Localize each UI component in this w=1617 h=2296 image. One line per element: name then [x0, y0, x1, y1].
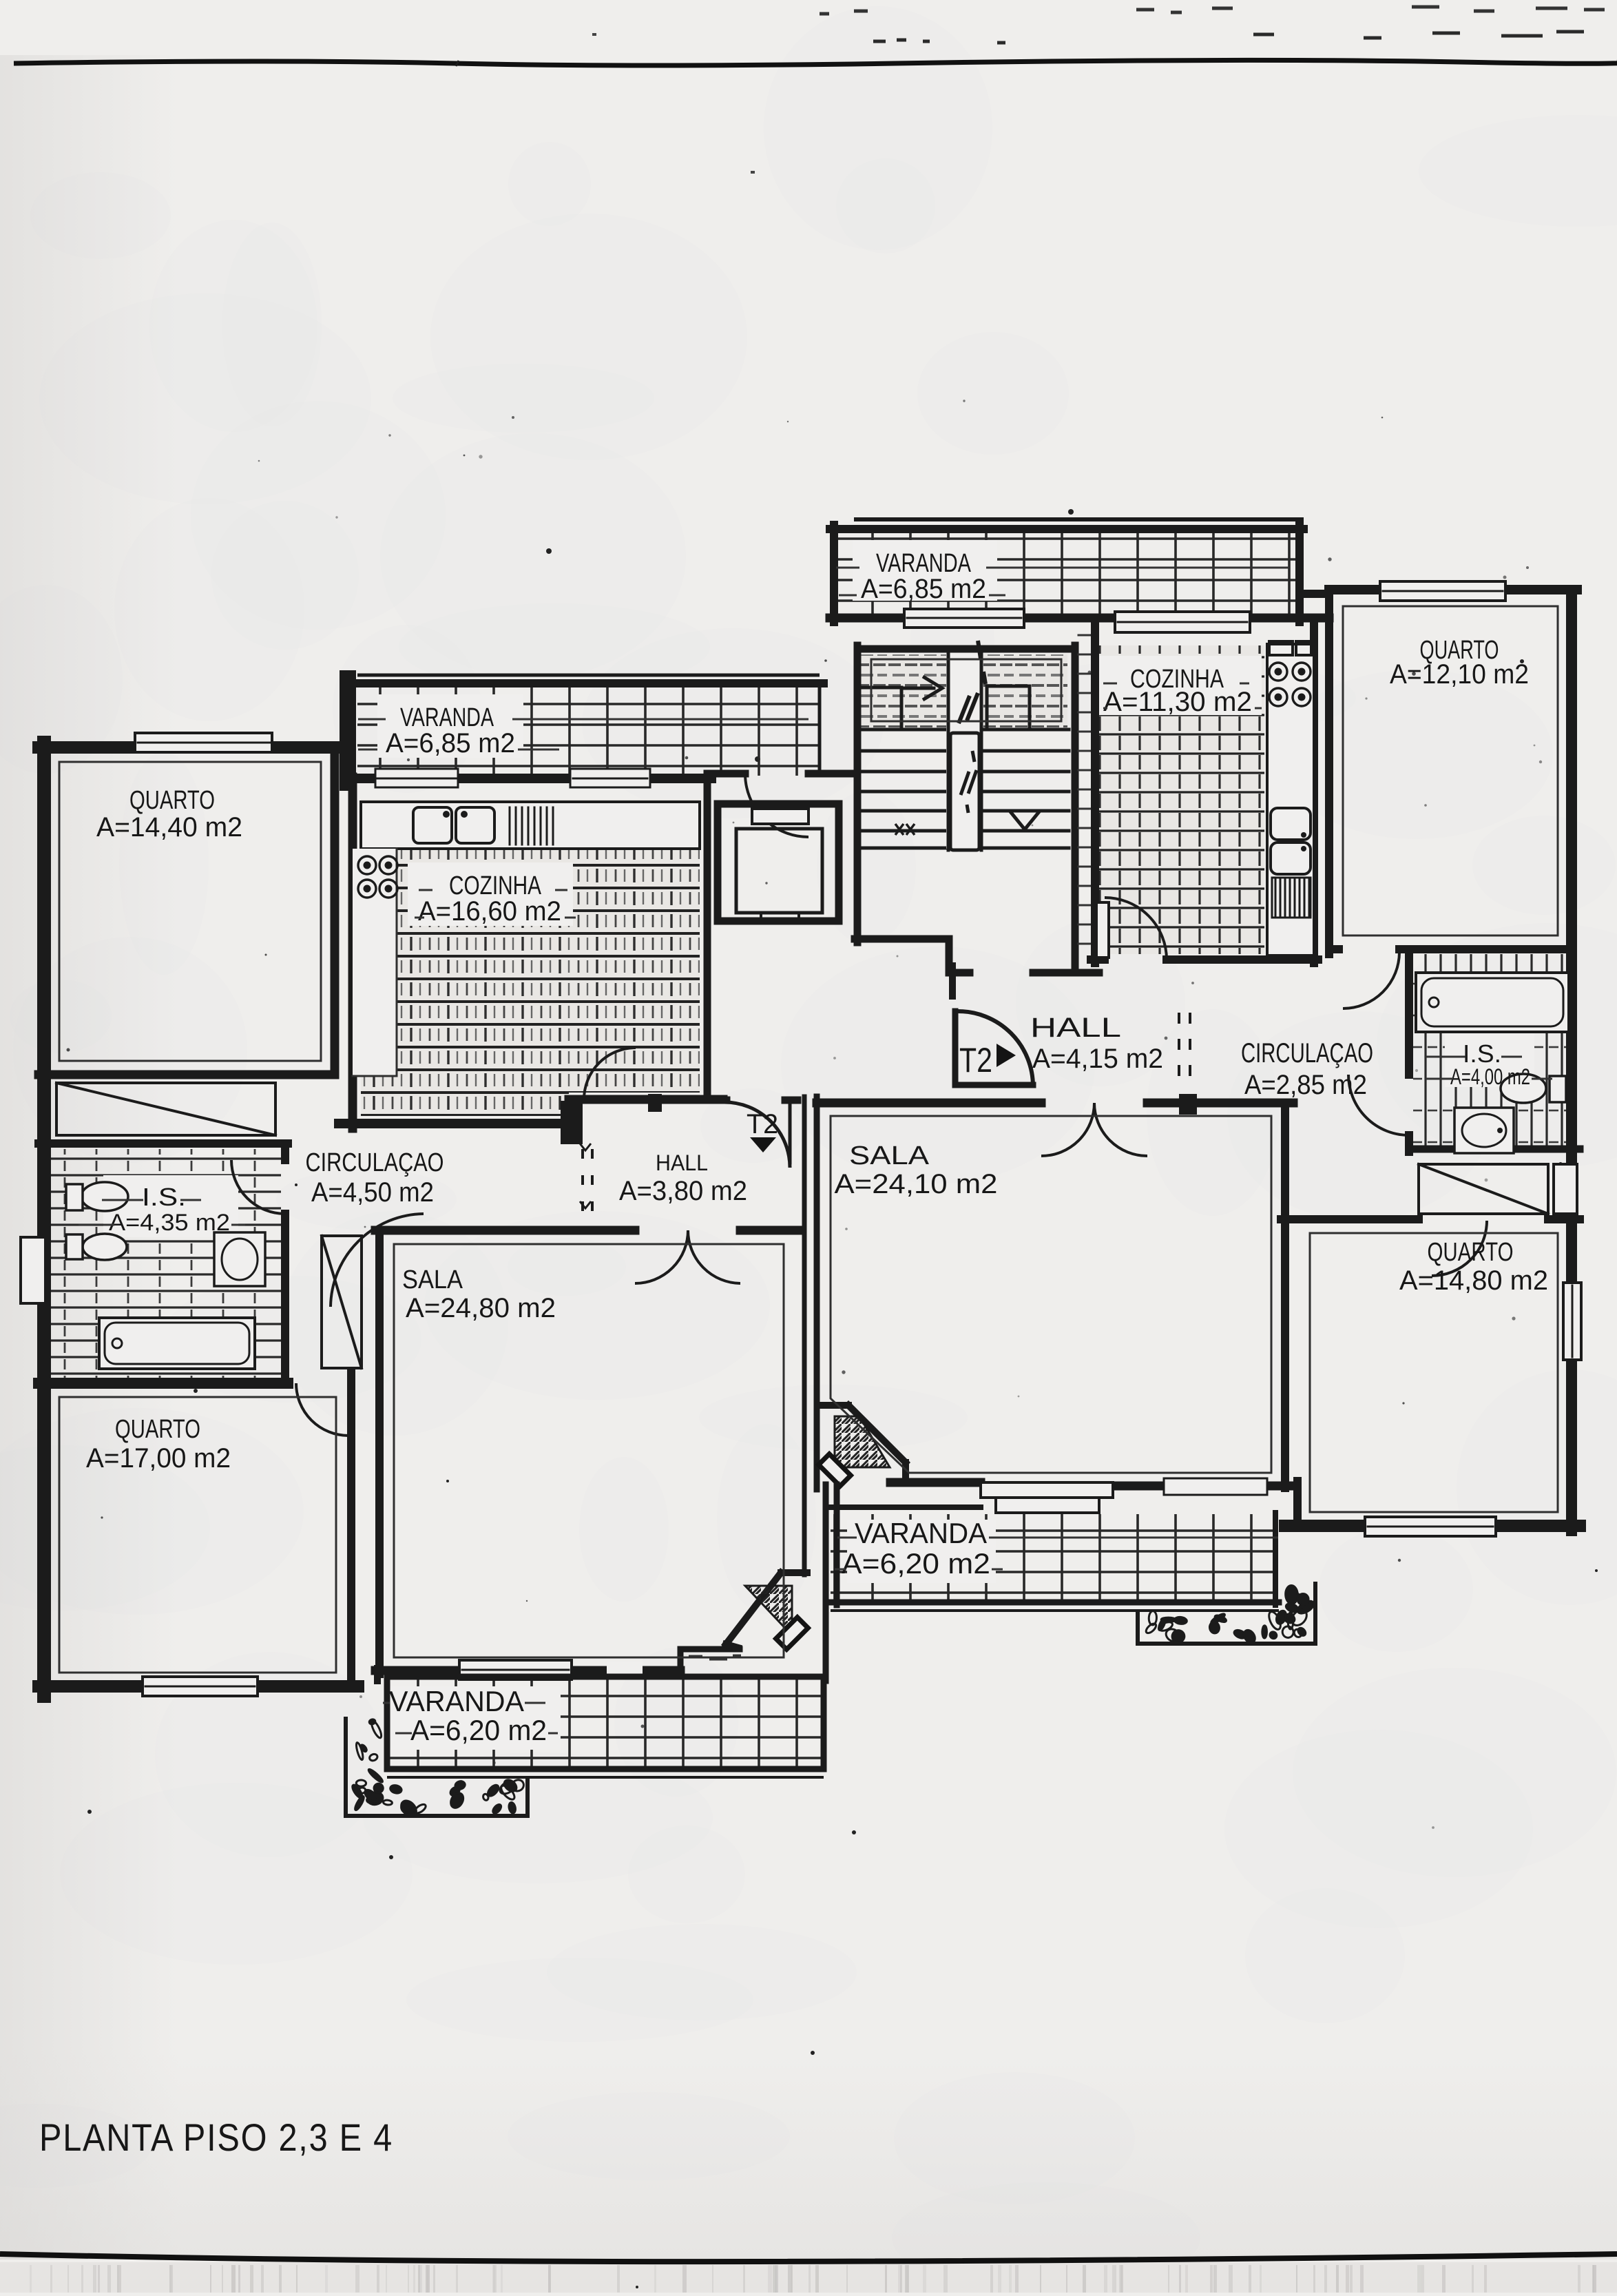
svg-text:T2: T2 — [959, 1041, 992, 1079]
svg-text:QUARTO: QUARTO — [129, 786, 215, 815]
svg-text:CIRCULAÇAO: CIRCULAÇAO — [306, 1148, 444, 1177]
svg-text:A=6,85 m2: A=6,85 m2 — [386, 728, 515, 758]
svg-text:A=4,15 m2: A=4,15 m2 — [1032, 1044, 1163, 1074]
svg-text:A=12,10 m2: A=12,10 m2 — [1390, 659, 1529, 690]
svg-text:VARANDA: VARANDA — [855, 1517, 987, 1549]
svg-text:PLANTA PISO 2,3 E 4: PLANTA PISO 2,3 E 4 — [39, 2116, 393, 2159]
svg-text:VARANDA: VARANDA — [389, 1685, 524, 1717]
svg-text:A=14,80 m2: A=14,80 m2 — [1399, 1265, 1548, 1296]
svg-text:A=14,40 m2: A=14,40 m2 — [96, 812, 242, 842]
svg-text:HALL: HALL — [1030, 1013, 1121, 1043]
svg-text:A=4,35 m2: A=4,35 m2 — [109, 1210, 230, 1236]
svg-text:A=4,00 m2: A=4,00 m2 — [1450, 1064, 1530, 1089]
svg-text:A=16,60 m2: A=16,60 m2 — [418, 896, 561, 927]
svg-text:QUARTO: QUARTO — [1428, 1238, 1514, 1267]
svg-text:A=6,20 m2: A=6,20 m2 — [842, 1547, 990, 1580]
svg-text:A=17,00 m2: A=17,00 m2 — [86, 1443, 231, 1473]
svg-text:QUARTO: QUARTO — [115, 1415, 200, 1444]
svg-text:A=2,85 m2: A=2,85 m2 — [1244, 1070, 1367, 1100]
svg-text:CIRCULAÇAO: CIRCULAÇAO — [1241, 1038, 1373, 1068]
svg-text:A=6,85 m2: A=6,85 m2 — [861, 574, 986, 604]
svg-text:SALA: SALA — [849, 1141, 930, 1170]
svg-text:I.S.: I.S. — [1463, 1040, 1501, 1068]
svg-text:A=24,10 m2: A=24,10 m2 — [835, 1169, 998, 1199]
svg-text:HALL: HALL — [656, 1150, 708, 1175]
svg-text:SALA: SALA — [402, 1265, 463, 1294]
svg-text:A=6,20 m2: A=6,20 m2 — [410, 1714, 547, 1746]
svg-text:A=3,80 m2: A=3,80 m2 — [619, 1176, 747, 1206]
svg-text:T2: T2 — [747, 1109, 778, 1139]
svg-text:A=24,80 m2: A=24,80 m2 — [406, 1293, 556, 1323]
svg-text:A=11,30 m2: A=11,30 m2 — [1103, 687, 1252, 717]
svg-text:A=4,50 m2: A=4,50 m2 — [311, 1177, 434, 1208]
svg-text:I.S.: I.S. — [142, 1183, 186, 1211]
